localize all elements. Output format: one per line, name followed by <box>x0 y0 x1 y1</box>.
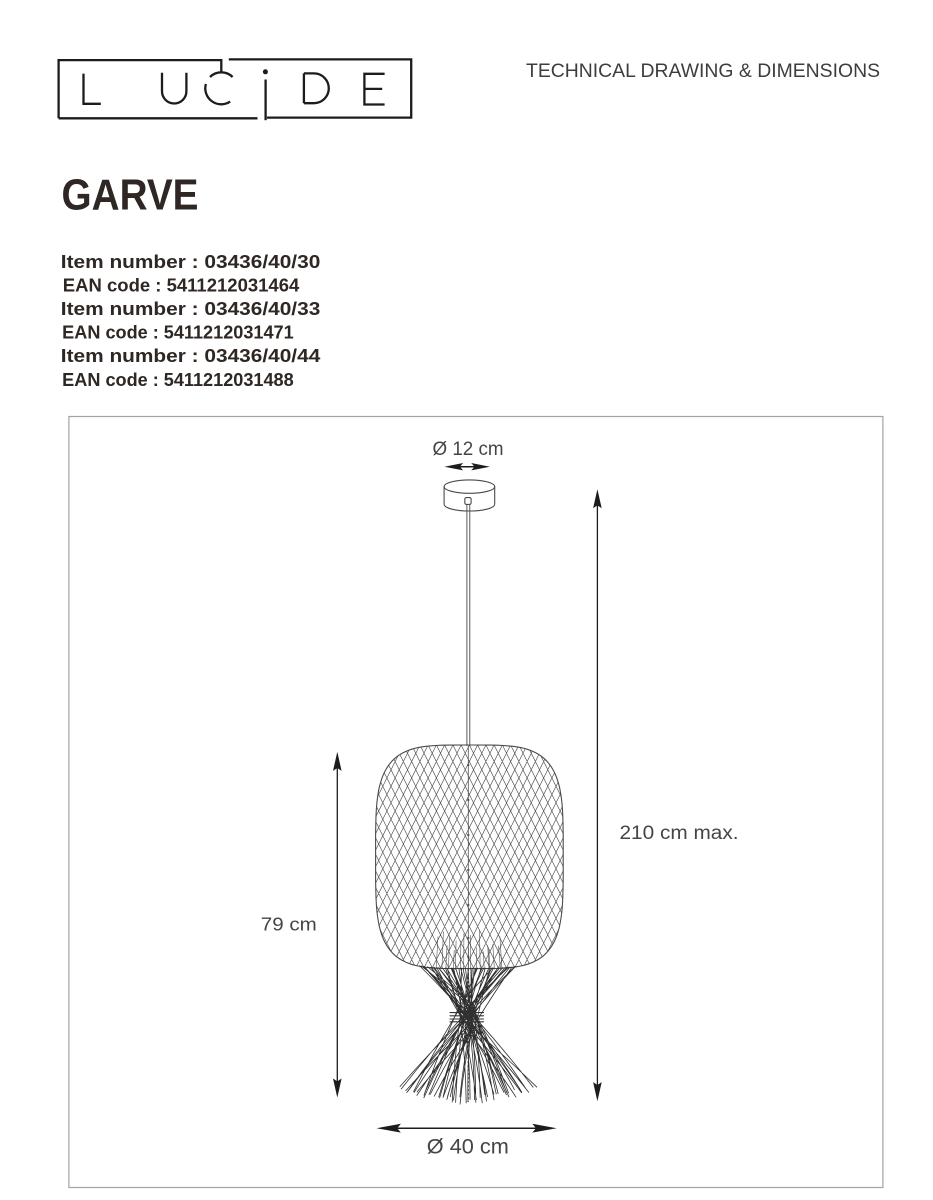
svg-text:EAN code : 5411212031488: EAN code : 5411212031488 <box>62 370 293 390</box>
svg-text:210 cm max.: 210 cm max. <box>620 823 739 844</box>
svg-text:EAN code : 5411212031471: EAN code : 5411212031471 <box>62 323 293 343</box>
svg-text:Item number : 03436/40/44: Item number : 03436/40/44 <box>61 346 321 366</box>
svg-text:Item number : 03436/40/33: Item number : 03436/40/33 <box>61 299 321 319</box>
svg-text:TECHNICAL DRAWING & DIMENSIONS: TECHNICAL DRAWING & DIMENSIONS <box>526 61 880 82</box>
svg-text:GARVE: GARVE <box>62 171 199 220</box>
svg-text:79 cm: 79 cm <box>261 915 317 935</box>
svg-text:Item number : 03436/40/30: Item number : 03436/40/30 <box>61 252 321 272</box>
svg-text:Ø 12 cm: Ø 12 cm <box>433 439 504 460</box>
svg-text:Ø 40 cm: Ø 40 cm <box>427 1136 509 1159</box>
svg-text:EAN code : 5411212031464: EAN code : 5411212031464 <box>63 275 299 295</box>
